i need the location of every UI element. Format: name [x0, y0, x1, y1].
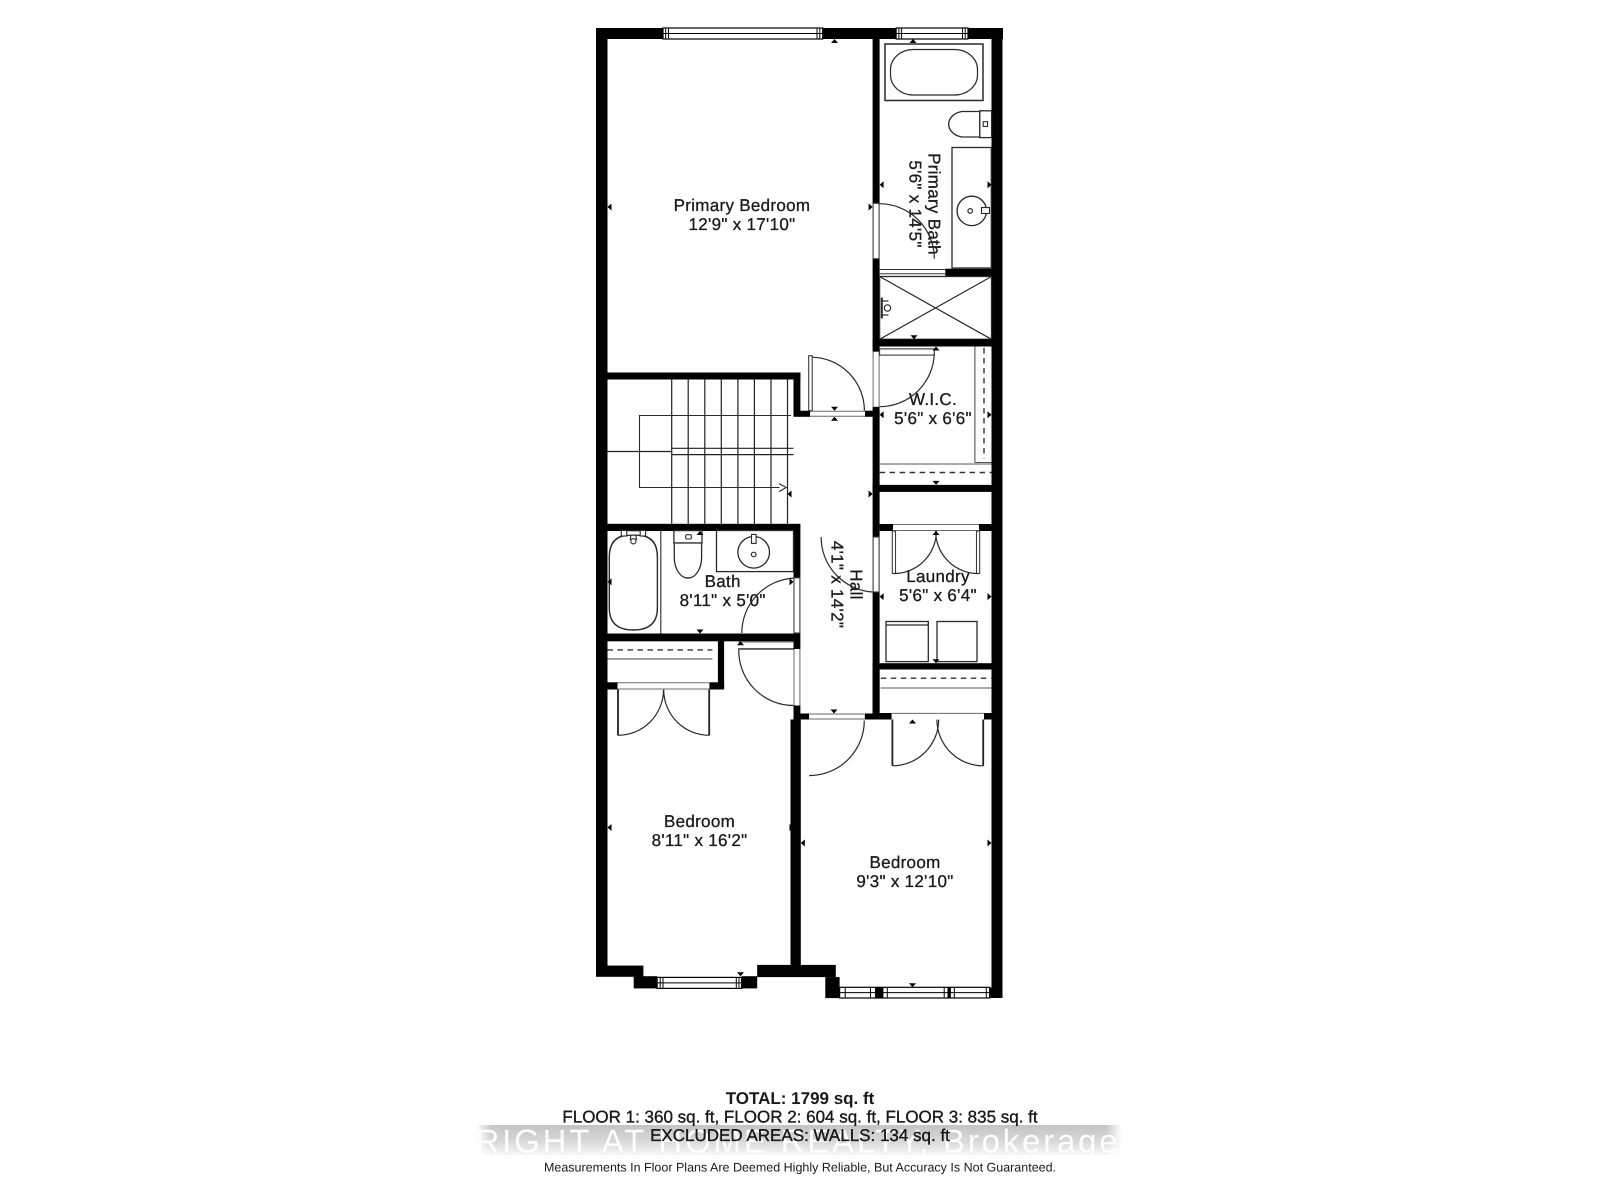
svg-text:5'6" x 6'6": 5'6" x 6'6"	[894, 409, 972, 428]
svg-text:5'6" x 14'5": 5'6" x 14'5"	[906, 160, 925, 247]
svg-text:4'1" x 14'2": 4'1" x 14'2"	[828, 541, 847, 628]
svg-text:Bath: Bath	[705, 572, 741, 591]
svg-text:TOTAL: 1799 sq. ft: TOTAL: 1799 sq. ft	[726, 1089, 875, 1108]
svg-text:8'11" x 16'2": 8'11" x 16'2"	[652, 831, 748, 850]
svg-text:Hall: Hall	[847, 569, 866, 600]
svg-text:Bedroom: Bedroom	[869, 853, 940, 872]
svg-text:Bedroom: Bedroom	[664, 812, 735, 831]
svg-text:EXCLUDED AREAS: WALLS: 134 sq.: EXCLUDED AREAS: WALLS: 134 sq. ft	[650, 1126, 950, 1145]
svg-text:Primary Bath: Primary Bath	[925, 153, 944, 255]
svg-text:9'3" x 12'10": 9'3" x 12'10"	[856, 872, 953, 891]
svg-text:Primary Bedroom: Primary Bedroom	[674, 196, 811, 215]
svg-text:12'9" x 17'10": 12'9" x 17'10"	[689, 215, 796, 234]
svg-text:5'6" x 6'4": 5'6" x 6'4"	[899, 586, 977, 605]
svg-text:Measurements In Floor Plans Ar: Measurements In Floor Plans Are Deemed H…	[544, 1161, 1056, 1175]
svg-text:FLOOR 1: 360 sq. ft, FLOOR 2:: FLOOR 1: 360 sq. ft, FLOOR 2: 604 sq. ft…	[562, 1108, 1038, 1127]
